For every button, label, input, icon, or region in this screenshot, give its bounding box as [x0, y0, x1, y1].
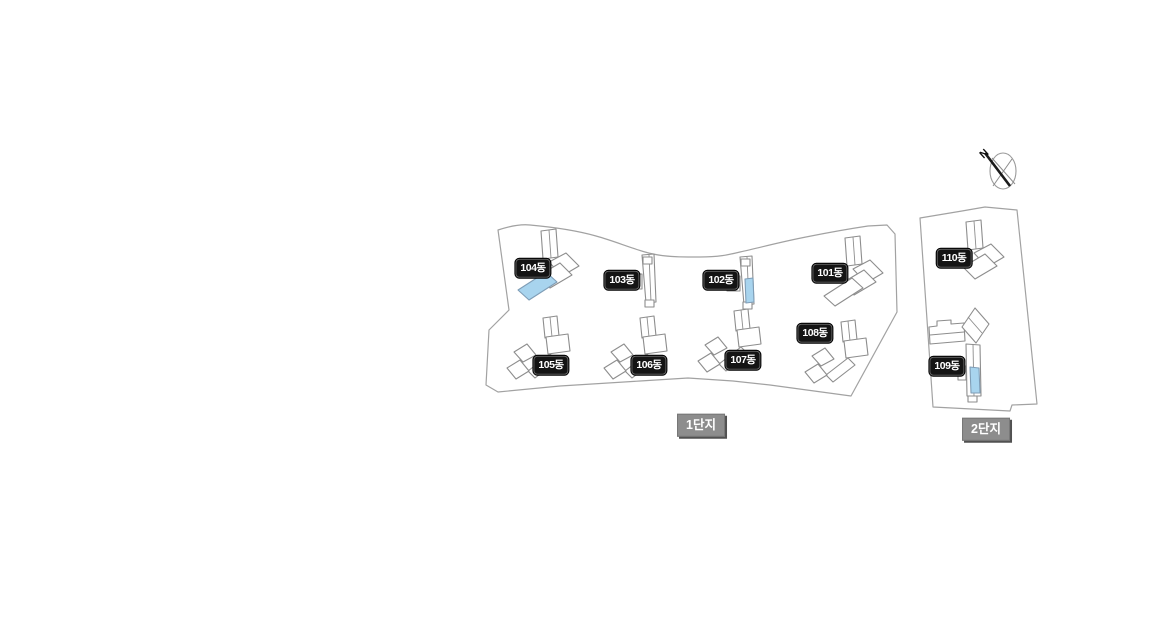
building-label-101[interactable]: 101동	[811, 263, 848, 284]
building-label-104[interactable]: 104동	[514, 258, 551, 279]
building-label-105[interactable]: 105동	[532, 355, 569, 376]
building-label-110[interactable]: 110동	[936, 248, 973, 269]
building-label-106[interactable]: 106동	[630, 355, 667, 376]
complex2-caption: 2단지	[962, 418, 1010, 441]
building-label-108[interactable]: 108동	[796, 323, 833, 344]
site-map-canvas: N	[0, 0, 1160, 630]
site-map: N 104동 103동 102동 101동 105동 106동 107동 108…	[0, 0, 1160, 630]
complex1-caption: 1단지	[677, 414, 725, 437]
building-label-103[interactable]: 103동	[603, 270, 640, 291]
building-102-highlight-unit	[745, 278, 754, 303]
building-109-highlight-unit	[970, 367, 980, 393]
building-label-102[interactable]: 102동	[702, 270, 739, 291]
building-label-109[interactable]: 109동	[928, 356, 965, 377]
compass-icon: N	[977, 147, 1016, 189]
building-label-107[interactable]: 107동	[724, 350, 761, 371]
